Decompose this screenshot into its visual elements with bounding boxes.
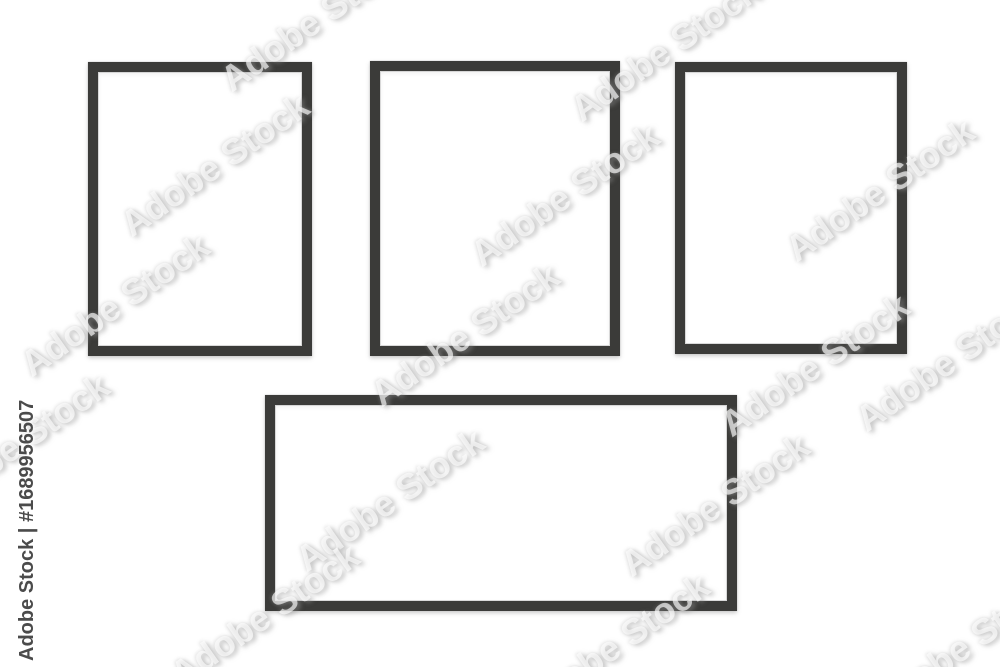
frame-landscape-bottom — [265, 395, 737, 611]
adobe-stock-id-watermark: Adobe Stock | #1689956507 — [16, 371, 42, 661]
frame-portrait-left — [88, 62, 312, 356]
adobe-stock-watermark-tile: Adobe Stock — [863, 565, 1000, 667]
frame-portrait-center — [370, 61, 620, 356]
frame-portrait-right — [675, 62, 907, 354]
stock-photo-canvas: Adobe StockAdobe StockAdobe StockAdobe S… — [0, 0, 1000, 667]
